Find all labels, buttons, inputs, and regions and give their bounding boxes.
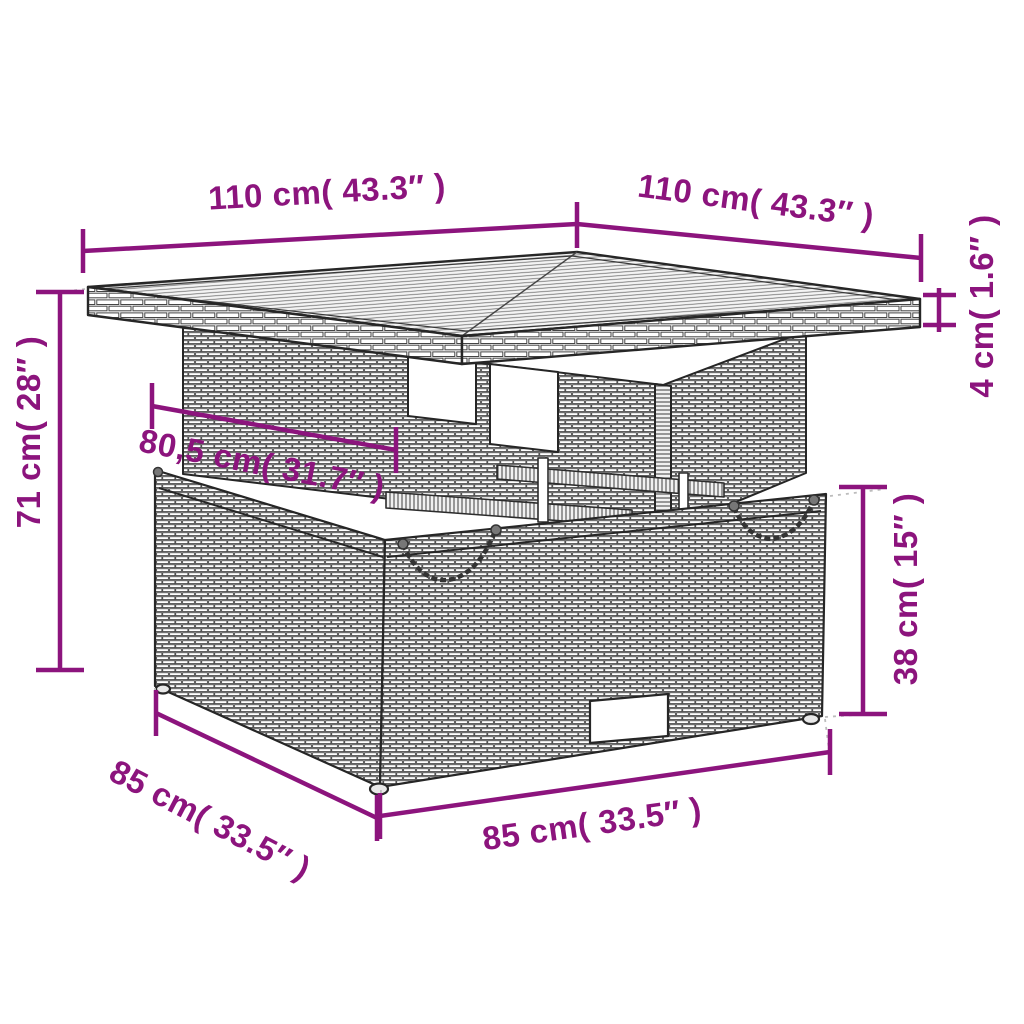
dimension-box-height [839,487,887,714]
handle-knob [809,495,819,505]
furniture-line-drawing [0,0,1024,1024]
label-tabletop-thickness: 4 cm( 1.6″ ) [963,214,1001,397]
storage-box [155,470,826,795]
handle-knob [491,525,501,535]
shelf-leg-front [538,458,548,522]
box-foot-right [803,714,819,724]
apron-opening-right [490,364,558,452]
label-table-height: 71 cm( 28″ ) [10,336,48,528]
handle-knob [729,501,739,511]
dimension-tabletop-thickness [923,288,956,332]
product-dimension-diagram: 110 cm( 43.3″ ) 110 cm( 43.3″ ) 4 cm( 1.… [0,0,1024,1024]
box-foot-front [370,784,388,795]
box-left-face [155,470,385,787]
handle-knob [398,539,408,549]
label-box-height: 38 cm( 15″ ) [887,493,925,685]
box-cutout [590,694,668,743]
handle-knob [154,468,163,477]
